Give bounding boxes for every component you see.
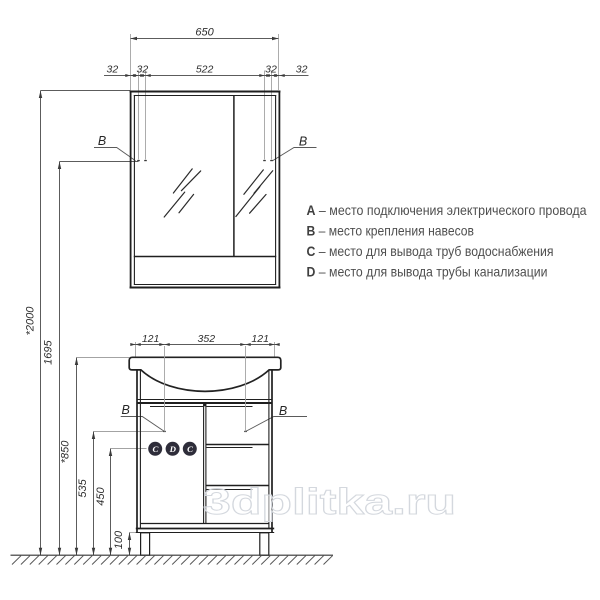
svg-text:B: B bbox=[98, 134, 106, 148]
svg-text:535: 535 bbox=[77, 478, 89, 497]
svg-text:C – место для вывода труб водо: C – место для вывода труб водоснабжения bbox=[307, 243, 554, 259]
svg-text:32: 32 bbox=[137, 64, 149, 76]
svg-text:C: C bbox=[187, 444, 193, 454]
svg-text:D – место для вывода трубы кан: D – место для вывода трубы канализации bbox=[307, 264, 548, 280]
svg-text:32: 32 bbox=[107, 64, 119, 76]
svg-text:32: 32 bbox=[296, 64, 308, 76]
svg-text:A – место подключения электрич: A – место подключения электрического про… bbox=[307, 202, 587, 218]
svg-text:B: B bbox=[122, 403, 130, 417]
svg-text:C: C bbox=[152, 444, 158, 454]
svg-text:B – место крепления навесов: B – место крепления навесов bbox=[307, 223, 475, 239]
svg-text:121: 121 bbox=[142, 333, 160, 345]
svg-text:B: B bbox=[299, 135, 307, 149]
svg-text:1695: 1695 bbox=[43, 339, 55, 364]
svg-text:100: 100 bbox=[113, 530, 125, 549]
svg-text:450: 450 bbox=[95, 487, 107, 506]
svg-text:*850: *850 bbox=[60, 440, 72, 464]
svg-text:522: 522 bbox=[196, 64, 214, 76]
svg-text:352: 352 bbox=[198, 333, 216, 345]
svg-text:B: B bbox=[279, 404, 287, 418]
svg-text:121: 121 bbox=[251, 333, 269, 345]
svg-text:*2000: *2000 bbox=[24, 306, 36, 336]
svg-text:D: D bbox=[169, 444, 177, 454]
svg-text:3dplitka.ru: 3dplitka.ru bbox=[203, 481, 456, 522]
svg-text:650: 650 bbox=[195, 26, 214, 38]
svg-text:32: 32 bbox=[265, 64, 277, 76]
